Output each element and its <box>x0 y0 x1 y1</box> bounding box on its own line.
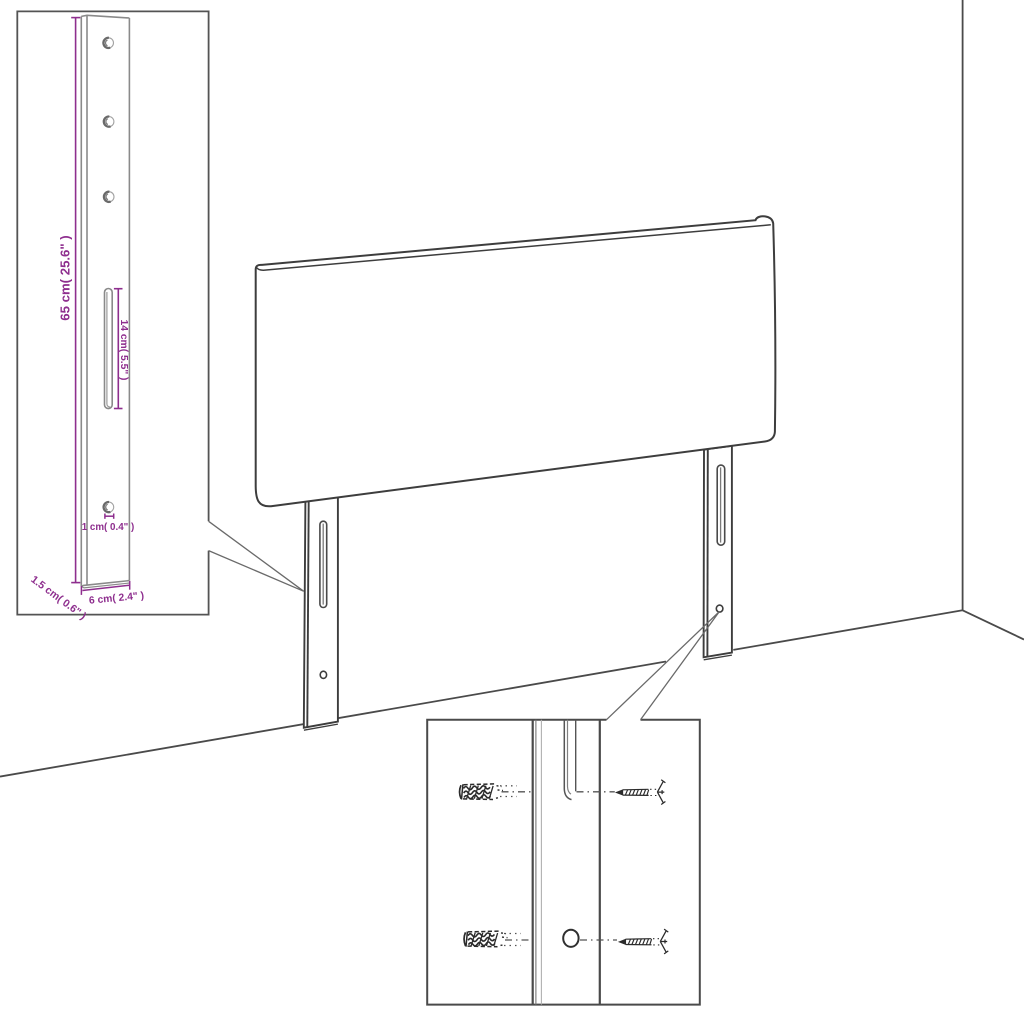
svg-text:65 cm( 25.6" ): 65 cm( 25.6" ) <box>57 235 72 320</box>
svg-text:1 cm( 0.4" ): 1 cm( 0.4" ) <box>82 522 135 533</box>
svg-text:14 cm( 5.5" ): 14 cm( 5.5" ) <box>118 320 129 381</box>
